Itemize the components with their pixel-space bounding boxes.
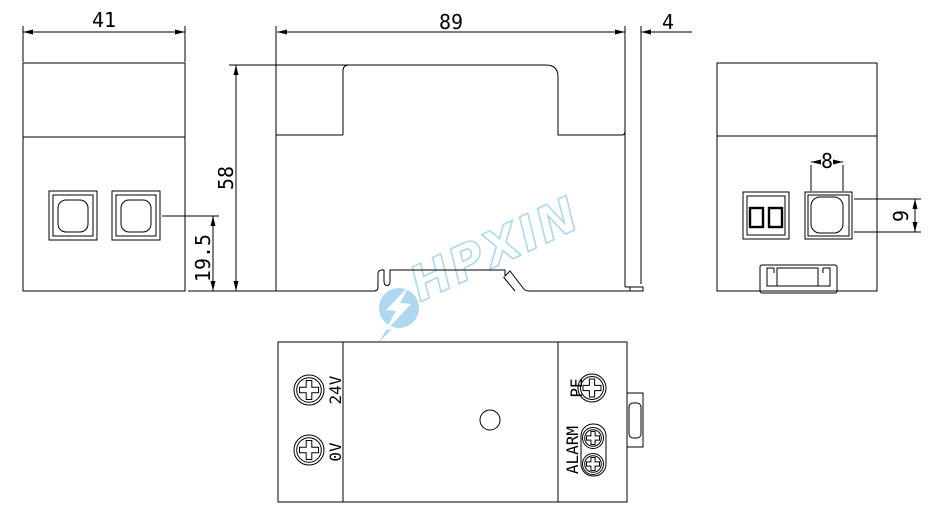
right-view [717, 63, 877, 293]
dim-label-9: 9 [889, 210, 913, 222]
side-latch-tab [627, 393, 643, 447]
mounting-hole [480, 410, 500, 430]
terminal-screw-0v [294, 435, 324, 465]
phillips-cross-icon [587, 458, 600, 471]
front-top-profile [229, 65, 625, 135]
dimension-89: 89 [277, 10, 625, 35]
dim-label-4: 4 [662, 10, 674, 34]
terminal-label-24v: 24V [326, 375, 345, 404]
dim-label-41: 41 [92, 8, 116, 32]
front-view [188, 26, 643, 291]
dimension-9: 9 [854, 199, 921, 232]
dimension-8: 8 [811, 149, 843, 191]
dimension-19-5: 19.5 [162, 216, 219, 291]
phillips-cross-icon [587, 432, 600, 445]
lightning-bolt-tip [379, 329, 392, 342]
front-panel-step [343, 65, 349, 135]
left-view [23, 63, 185, 291]
phillips-cross-icon [300, 441, 319, 460]
terminal-label-0v: 0V [326, 442, 345, 462]
dimension-58: 58 [214, 65, 276, 291]
dim-label-8: 8 [821, 149, 833, 173]
dim-label-19-5: 19.5 [191, 234, 215, 282]
dim-label-89: 89 [439, 10, 463, 34]
watermark-logo: HPXIN [379, 186, 589, 342]
left-view-outline [23, 63, 185, 291]
dimension-41: 41 [23, 8, 185, 62]
phillips-cross-icon [300, 381, 319, 400]
terminal-label-alarm: ALARM [563, 426, 582, 474]
terminal-alarm-block [581, 424, 606, 476]
din-rail-clip [760, 265, 837, 293]
din-latch-inner-edge [504, 277, 516, 291]
connector-button [49, 191, 97, 240]
terminal-label-pe: PE [567, 378, 586, 397]
engineering-drawing: HPXIN 41 [0, 0, 943, 523]
bottom-view: 24V 0V PE ALARM [278, 342, 643, 502]
terminal-screw-24v [294, 375, 324, 405]
end-plate-foot [625, 287, 643, 291]
dimension-4: 4 [641, 10, 692, 35]
right-view-outline [717, 63, 877, 291]
dual-port-connector [743, 192, 789, 239]
square-port-connector [805, 192, 852, 239]
dim-label-58: 58 [214, 166, 238, 190]
watermark-text: HPXIN [401, 186, 588, 313]
connector-button [112, 191, 160, 240]
bottom-view-outline [278, 342, 627, 502]
